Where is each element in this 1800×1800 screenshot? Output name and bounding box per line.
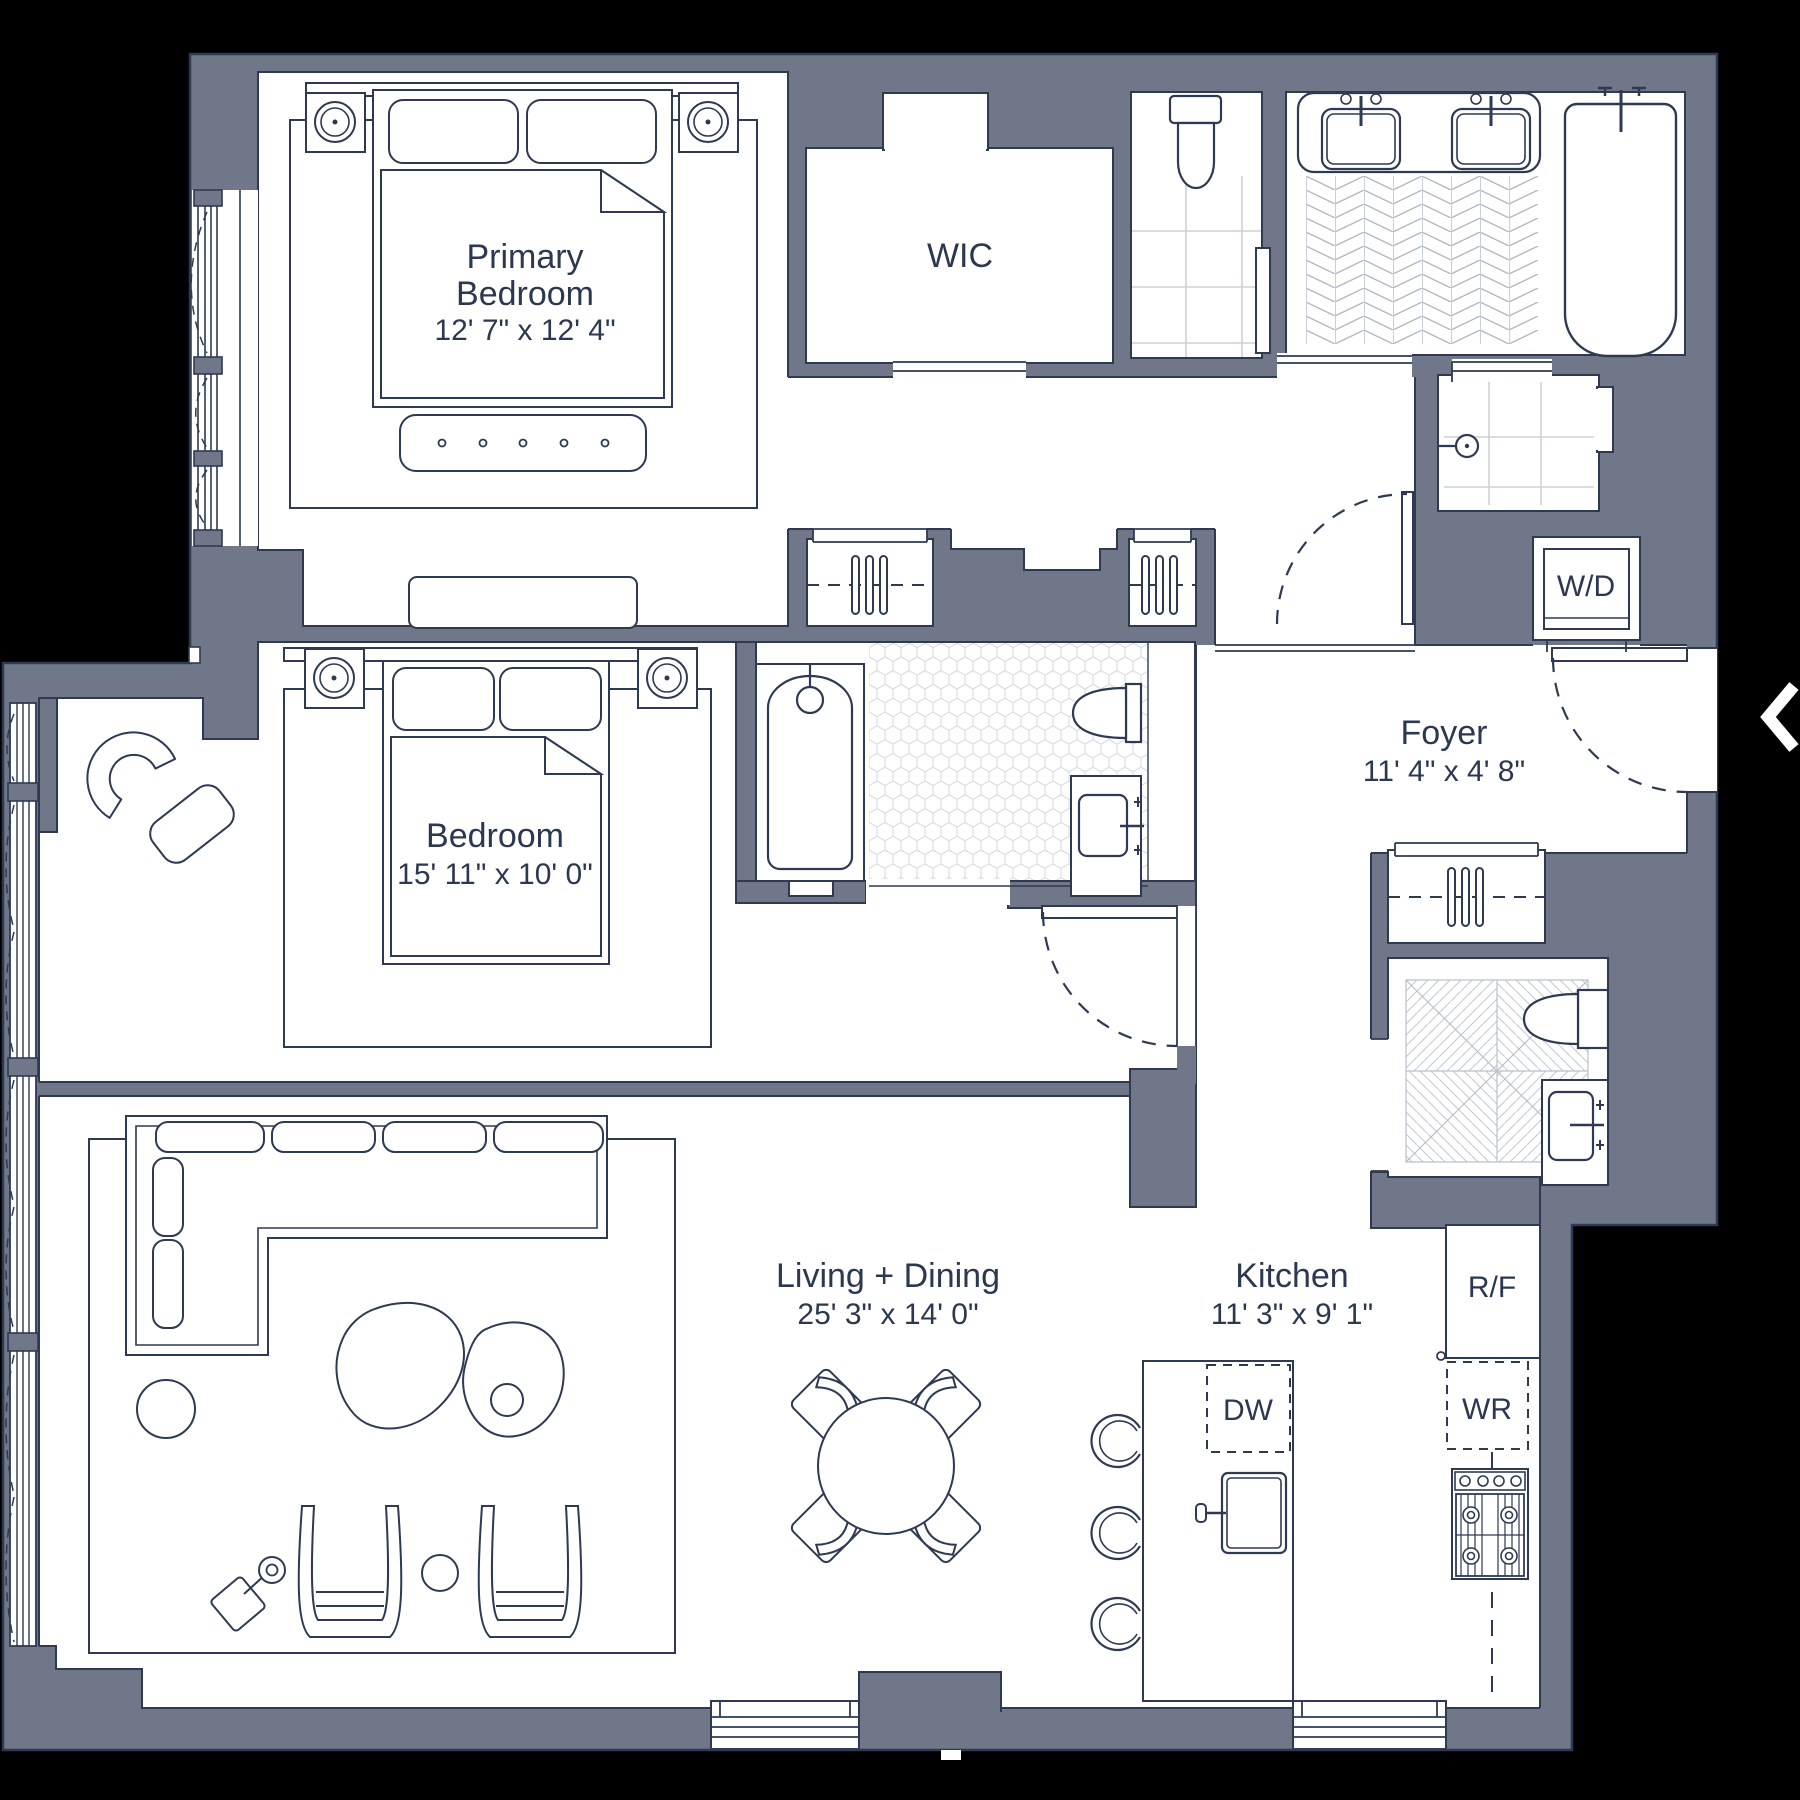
svg-text:WR: WR [1462,1393,1512,1426]
svg-text:12' 7" x 12' 4": 12' 7" x 12' 4" [434,314,615,347]
svg-text:Primary: Primary [466,238,583,276]
svg-text:WIC: WIC [927,237,993,275]
svg-text:25' 3" x 14' 0": 25' 3" x 14' 0" [797,1298,978,1331]
svg-text:Kitchen: Kitchen [1235,1257,1348,1295]
svg-text:Bedroom: Bedroom [426,817,564,855]
svg-text:Foyer: Foyer [1401,714,1488,752]
svg-text:15' 11" x 10' 0": 15' 11" x 10' 0" [397,858,593,891]
svg-text:11' 3" x 9' 1": 11' 3" x 9' 1" [1211,1298,1373,1331]
svg-text:11' 4" x 4' 8": 11' 4" x 4' 8" [1363,755,1525,788]
svg-text:Living + Dining: Living + Dining [776,1257,1000,1295]
svg-text:DW: DW [1223,1394,1274,1427]
svg-text:Bedroom: Bedroom [456,275,594,313]
svg-text:W/D: W/D [1557,570,1615,603]
svg-text:R/F: R/F [1468,1271,1516,1304]
